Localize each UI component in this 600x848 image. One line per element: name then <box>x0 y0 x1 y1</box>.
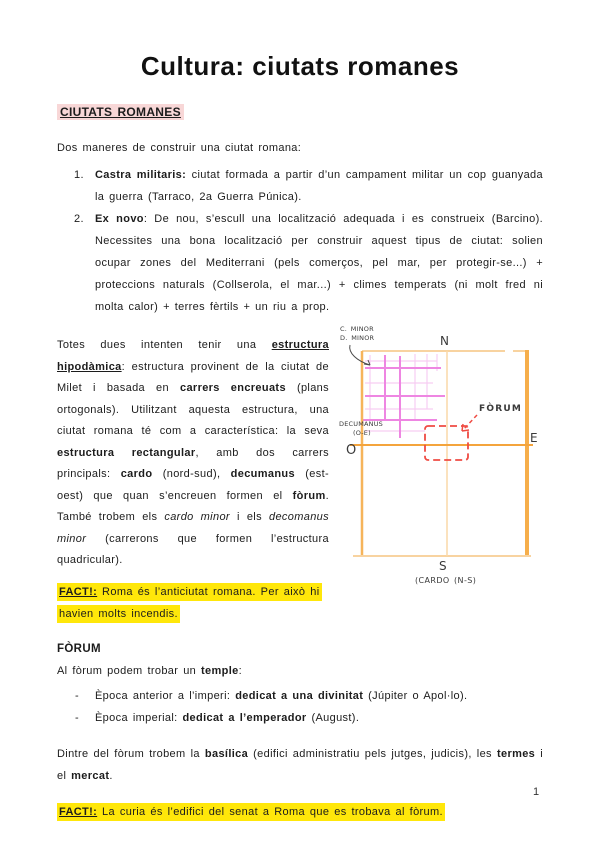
forum-bullet-list: - Època anterior a l’imperi: dedicat a u… <box>57 685 543 729</box>
bullet-dash: - <box>75 685 79 707</box>
list-term: Castra militaris: <box>95 169 186 181</box>
paragraph-bold: basílica <box>205 748 248 760</box>
section-heading-ciutats-romanes: CIUTATS ROMANES <box>57 104 184 120</box>
paragraph-text: estructura rectangular <box>57 447 195 459</box>
bullet-text: Època anterior a l’imperi: <box>95 690 235 702</box>
paragraph-bold: termes <box>497 748 535 760</box>
forum-label: FÒRUM <box>479 402 522 414</box>
bullet-text: Època imperial: <box>95 712 182 724</box>
cardo-label: (CARDO (N-S) <box>415 576 476 585</box>
south-label: S <box>439 559 447 573</box>
list-term: Ex novo <box>95 213 144 225</box>
paragraph-and-diagram: C. MINOR D. MINOR N E O S (CARDO (N-S) D… <box>57 335 543 625</box>
west-label: O <box>346 443 357 458</box>
page-number: 1 <box>533 786 539 798</box>
decumanus-sub-label: (O-E) <box>353 429 371 437</box>
fact-text: Roma és l’anticiutat romana. Per això hi… <box>59 586 320 620</box>
list-number: 1. <box>74 164 84 186</box>
decumanus-label: DECUMANUS <box>339 420 383 428</box>
bullet-text: (Júpiter o Apol·lo). <box>363 690 467 702</box>
fact-label: FACT!: <box>59 586 97 598</box>
page-title: Cultura: ciutats romanes <box>0 0 600 82</box>
paragraph-text: Dintre del fòrum trobem la <box>57 748 205 760</box>
forum-intro-line: Al fòrum podem trobar un temple: <box>57 661 543 682</box>
basilica-paragraph: Dintre del fòrum trobem la basílica (edi… <box>57 743 543 787</box>
paragraph-text: (edifici administratiu pels jutges, judi… <box>248 748 497 760</box>
paragraph-text: decumanus <box>231 468 295 480</box>
forum-intro-text: Al fòrum podem trobar un <box>57 665 201 677</box>
forum-arrow <box>462 415 477 431</box>
north-label: N <box>440 334 449 348</box>
east-label: E <box>530 431 538 445</box>
paragraph-text: (nord-sud), <box>152 468 230 480</box>
paragraph-text: fòrum <box>293 490 326 502</box>
bullet-bold: dedicat a una divinitat <box>235 690 363 702</box>
forum-intro-bold: temple <box>201 665 239 677</box>
bullet-item-pre-imperial: - Època anterior a l’imperi: dedicat a u… <box>57 685 543 707</box>
paragraph-text: i els <box>230 511 269 523</box>
intro-line: Dos maneres de construir una ciutat roma… <box>57 141 543 156</box>
forum-heading: FÒRUM <box>57 642 543 657</box>
paragraph-bold: mercat <box>71 770 109 782</box>
list-number: 2. <box>74 208 84 230</box>
minor-label-arrow <box>350 345 370 365</box>
bullet-bold: dedicat a l’emperador <box>182 712 306 724</box>
minor-streets-label-line1: C. MINOR <box>340 325 374 333</box>
city-plan-diagram: C. MINOR D. MINOR N E O S (CARDO (N-S) D… <box>337 321 562 599</box>
forum-intro-text: : <box>239 665 242 677</box>
fact-text: La curia és l’edifici del senat a Roma q… <box>97 806 443 818</box>
bullet-dash: - <box>75 707 79 729</box>
document-page: Cultura: ciutats romanes CIUTATS ROMANES… <box>0 0 600 848</box>
paragraph-text: cardo <box>121 468 153 480</box>
fact-curia: FACT!: La curia és l’edifici del senat a… <box>57 801 543 823</box>
bullet-item-imperial: - Època imperial: dedicat a l’emperador … <box>57 707 543 729</box>
list-item-ex-novo: 2. Ex novo: De nou, s’escull una localit… <box>57 208 543 318</box>
list-text: : De nou, s’escull una localització adeq… <box>95 213 543 313</box>
paragraph-text: (carrerons que formen l’estructura quadr… <box>57 533 329 567</box>
bullet-text: (August). <box>307 712 360 724</box>
numbered-list: 1. Castra militaris: ciutat formada a pa… <box>57 164 543 318</box>
paragraph-text: carrers encreuats <box>180 382 286 394</box>
paragraph-text: . <box>109 770 112 782</box>
city-wall <box>353 350 531 557</box>
minor-streets-label-line2: D. MINOR <box>340 334 375 342</box>
paragraph-text: cardo minor <box>164 511 230 523</box>
paragraph-text: Totes dues intenten tenir una <box>57 339 272 351</box>
city-plan-sketch: C. MINOR D. MINOR N E O S (CARDO (N-S) D… <box>337 321 562 599</box>
list-item-castra-militaris: 1. Castra militaris: ciutat formada a pa… <box>57 164 543 208</box>
fact-label: FACT!: <box>59 806 97 818</box>
